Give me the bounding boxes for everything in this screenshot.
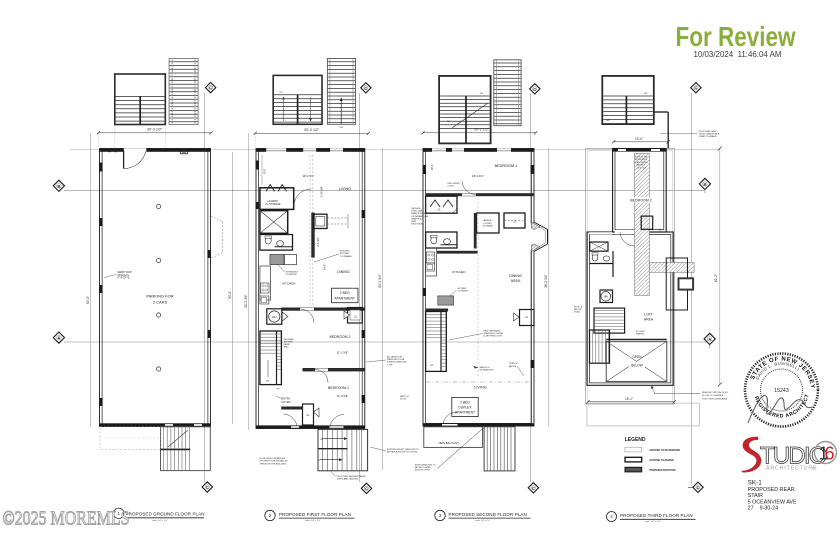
svg-text:THROUGH THE BUILDING: THROUGH THE BUILDING xyxy=(259,463,286,465)
svg-text:ABOVE 7': ABOVE 7' xyxy=(637,164,647,167)
svg-text:BE REMOVED: BE REMOVED xyxy=(480,369,494,371)
svg-text:BEDROOM 1: BEDROOM 1 xyxy=(495,164,518,168)
svg-text:20'-2 1/2": 20'-2 1/2" xyxy=(474,127,490,131)
svg-text:C: C xyxy=(697,486,700,490)
svg-text:ALL BEDROOM: ALL BEDROOM xyxy=(387,356,402,359)
svg-text:©2025 MOREMLS: ©2025 MOREMLS xyxy=(3,508,130,530)
svg-text:EXISTING TO BE REMOVED: EXISTING TO BE REMOVED xyxy=(650,450,681,452)
svg-text:EXIST. GAS: EXIST. GAS xyxy=(411,210,423,213)
svg-text:SMART VENT: SMART VENT xyxy=(117,271,132,274)
svg-text:DINING: DINING xyxy=(337,270,350,274)
svg-text:50'-0": 50'-0" xyxy=(86,296,90,304)
svg-text:2 BED: 2 BED xyxy=(460,400,470,404)
svg-text:(TYP. OF 4): (TYP. OF 4) xyxy=(117,278,129,280)
svg-text:PROPOSED NEW ENTRANCE: PROPOSED NEW ENTRANCE xyxy=(337,475,367,478)
svg-text:(1-HR FIRE) DOOR: (1-HR FIRE) DOOR xyxy=(484,336,503,338)
svg-text:36'-0 3/4": 36'-0 3/4" xyxy=(544,274,548,287)
svg-text:scale: 1/4" = 1'-0": scale: 1/4" = 1'-0" xyxy=(305,520,321,522)
svg-text:REPLACE: REPLACE xyxy=(411,207,421,210)
svg-text:LEGEND: LEGEND xyxy=(625,437,646,443)
svg-text:C: C xyxy=(209,86,212,90)
svg-text:STAIR ENCLOSURE: STAIR ENCLOSURE xyxy=(484,332,504,335)
svg-text:BELOW: BELOW xyxy=(631,364,643,368)
svg-text:BEDROOM 1: BEDROOM 1 xyxy=(328,386,349,390)
svg-text:APARTMENT: APARTMENT xyxy=(455,410,475,414)
svg-text:ROOM WITH: ROOM WITH xyxy=(635,159,647,161)
svg-text:EXISTING TO REMAIN: EXISTING TO REMAIN xyxy=(650,459,675,462)
svg-text:CL: CL xyxy=(438,208,442,212)
svg-text:HW: HW xyxy=(604,296,609,299)
svg-text:COUNTER: COUNTER xyxy=(286,274,297,276)
svg-text:SK-1: SK-1 xyxy=(748,480,763,487)
svg-text:11'-1 5/8": 11'-1 5/8" xyxy=(337,351,349,355)
svg-text:SYSTEM TO BE INSTALLED: SYSTEM TO BE INSTALLED xyxy=(259,460,288,463)
svg-text:14'-0": 14'-0" xyxy=(322,264,326,271)
svg-text:HEATER W/NEW: HEATER W/NEW xyxy=(411,212,427,215)
svg-text:LAUNDRY: LAUNDRY xyxy=(483,219,494,222)
svg-text:C: C xyxy=(206,486,209,490)
svg-text:UP: UP xyxy=(480,93,484,95)
svg-text:DN: DN xyxy=(430,365,434,367)
svg-text:STEPS AND LANDING: STEPS AND LANDING xyxy=(337,478,359,481)
svg-text:BEDROOM 2: BEDROOM 2 xyxy=(329,335,350,339)
svg-text:WALLS TO: WALLS TO xyxy=(480,366,491,369)
svg-text:DOOR: DOOR xyxy=(400,399,407,401)
svg-text:LOFT: LOFT xyxy=(644,313,653,317)
svg-text:10/03/2024 11:46:04 AM: 10/03/2024 11:46:04 AM xyxy=(694,50,782,59)
svg-text:REMOVE PORTION OF EX.: REMOVE PORTION OF EX. xyxy=(702,392,729,394)
svg-text:CLOSET/: CLOSET/ xyxy=(483,223,492,225)
svg-text:FLOOR TO CREATE A: FLOOR TO CREATE A xyxy=(702,394,724,397)
svg-text:LAUNDRY: LAUNDRY xyxy=(267,200,278,203)
svg-text:BE RELOCATED: BE RELOCATED xyxy=(415,466,431,469)
svg-text:AREA: AREA xyxy=(644,317,654,321)
svg-text:ENCLOSURE: ENCLOSURE xyxy=(411,224,424,226)
svg-text:50'-2 3/4": 50'-2 3/4" xyxy=(244,294,248,307)
svg-text:scale: 1/4" = 1'-0": scale: 1/4" = 1'-0" xyxy=(645,521,661,523)
svg-text:ROOF 'B' THE: ROOF 'B' THE xyxy=(635,157,649,159)
svg-text:NEW 1HR RATED: NEW 1HR RATED xyxy=(484,330,502,333)
svg-text:C: C xyxy=(533,87,536,91)
svg-text:DN: DN xyxy=(447,121,451,123)
svg-text:DN: DN xyxy=(644,93,648,95)
svg-text:UP: UP xyxy=(280,92,284,94)
svg-text:BE REPLACED BOTH FLOORS: BE REPLACED BOTH FLOORS xyxy=(387,451,418,454)
svg-text:C: C xyxy=(365,86,368,90)
svg-text:5 OCEANVIEW AVE: 5 OCEANVIEW AVE xyxy=(748,499,797,505)
svg-text:HEATER IN: HEATER IN xyxy=(411,217,422,220)
svg-text:AREA: AREA xyxy=(511,279,521,283)
svg-text:ABOVE: ABOVE xyxy=(509,365,517,368)
svg-text:RAILING: RAILING xyxy=(636,332,644,335)
svg-text:DOOR: DOOR xyxy=(448,186,455,188)
svg-text:LIVING: LIVING xyxy=(339,187,351,191)
svg-text:For Review: For Review xyxy=(676,21,796,52)
svg-text:B: B xyxy=(704,182,707,186)
svg-text:KITCHEN: KITCHEN xyxy=(282,282,295,286)
svg-text:NOTE: NEW SPRINKLER: NOTE: NEW SPRINKLER xyxy=(259,458,285,460)
svg-text:BOTH FLOORS: BOTH FLOORS xyxy=(415,470,431,472)
svg-text:COUNTER: COUNTER xyxy=(458,291,469,293)
svg-text:15243: 15243 xyxy=(774,388,789,394)
svg-text:scale: 1/4" = 1'-0": scale: 1/4" = 1'-0" xyxy=(152,520,168,522)
svg-text:STAIR TO GRADE: STAIR TO GRADE xyxy=(699,135,717,138)
svg-text:DINING: DINING xyxy=(509,274,522,278)
svg-text:PC: PC xyxy=(812,467,817,471)
svg-text:5.7SF: 5.7SF xyxy=(387,364,393,366)
svg-text:DUPLEX: DUPLEX xyxy=(458,405,472,409)
svg-text:8'-0": 8'-0" xyxy=(263,168,267,173)
svg-text:OPEN: OPEN xyxy=(632,355,642,359)
svg-text:20'-2 1/2": 20'-2 1/2" xyxy=(147,128,163,132)
svg-text:30'-0": 30'-0" xyxy=(228,291,232,299)
svg-text:STAIR: STAIR xyxy=(748,493,764,499)
svg-text:scale: 1/4" = 1'-0": scale: 1/4" = 1'-0" xyxy=(475,520,491,522)
svg-text:PROPOSED PARTITION: PROPOSED PARTITION xyxy=(650,469,676,472)
svg-text:APARTMENT: APARTMENT xyxy=(334,297,355,301)
svg-text:WH: WH xyxy=(272,315,276,319)
svg-text:OR EQUAL: OR EQUAL xyxy=(117,274,130,277)
svg-text:2'-6 3/4": 2'-6 3/4" xyxy=(316,237,320,247)
svg-text:VOID OVER LIVING AREA: VOID OVER LIVING AREA xyxy=(702,397,728,400)
svg-text:2 CARS: 2 CARS xyxy=(153,300,168,305)
svg-text:STORAGE: STORAGE xyxy=(483,225,494,228)
svg-text:KITCHEN: KITCHEN xyxy=(452,270,465,274)
svg-text:TO REMAIN: TO REMAIN xyxy=(340,255,352,258)
svg-text:A: A xyxy=(58,336,61,340)
svg-text:11'-0 5/8": 11'-0 5/8" xyxy=(337,394,349,398)
svg-text:27 9-30-24: 27 9-30-24 xyxy=(748,506,779,512)
svg-text:EXTENDED: EXTENDED xyxy=(286,272,298,274)
svg-text:WALL: WALL xyxy=(284,346,290,349)
svg-text:6: 6 xyxy=(825,444,835,464)
svg-text:C: C xyxy=(695,86,698,90)
svg-text:PROPOSED GROUND FLOOR PLAN: PROPOSED GROUND FLOOR PLAN xyxy=(126,512,205,517)
svg-text:PROPOSED THIRD FLOOR PLAN: PROPOSED THIRD FLOOR PLAN xyxy=(620,513,693,518)
svg-text:18'-2 3/4": 18'-2 3/4" xyxy=(472,174,484,178)
svg-text:C: C xyxy=(365,487,368,491)
svg-text:50'-2 3/4": 50'-2 3/4" xyxy=(378,274,382,287)
svg-text:2 BED: 2 BED xyxy=(340,291,350,295)
svg-text:C: C xyxy=(532,486,535,490)
svg-text:UP: UP xyxy=(277,389,281,391)
svg-text:NEW BALCONY: NEW BALCONY xyxy=(439,441,460,445)
svg-text:DN: DN xyxy=(340,127,344,129)
svg-text:(FLAT): (FLAT) xyxy=(574,311,580,314)
svg-text:20'-2 1/2": 20'-2 1/2" xyxy=(304,128,320,132)
svg-text:10'-0": 10'-0" xyxy=(635,137,643,141)
svg-text:FLAT CEILING: FLAT CEILING xyxy=(634,161,648,164)
svg-text:DN: DN xyxy=(266,381,270,383)
svg-text:PARKING FOR: PARKING FOR xyxy=(146,294,173,299)
svg-text:A: A xyxy=(708,337,711,341)
svg-text:11'-6 3/4": 11'-6 3/4" xyxy=(319,186,323,197)
svg-text:42'-2": 42'-2" xyxy=(714,273,718,282)
svg-text:FOYER: FOYER xyxy=(282,400,291,404)
svg-text:B: B xyxy=(58,184,61,188)
svg-text:16'-1": 16'-1" xyxy=(430,164,434,171)
svg-text:CL./STORAGE: CL./STORAGE xyxy=(265,203,281,206)
svg-text:PROPOSED SECOND FLOOR PLAN: PROPOSED SECOND FLOOR PLAN xyxy=(449,512,527,517)
svg-text:LIVING: LIVING xyxy=(474,386,486,390)
svg-text:15'-1": 15'-1" xyxy=(625,397,633,401)
svg-text:BEDROOM 2: BEDROOM 2 xyxy=(630,199,652,203)
svg-text:ARCHITECTURE: ARCHITECTURE xyxy=(766,466,817,472)
svg-text:PROPOSED FIRST FLOOR PLAN: PROPOSED FIRST FLOOR PLAN xyxy=(279,512,351,517)
svg-text:DN: DN xyxy=(606,120,610,122)
svg-text:ON DEMAND GAS: ON DEMAND GAS xyxy=(411,215,429,218)
svg-text:+ 8'-0" CLG: + 8'-0" CLG xyxy=(636,167,647,169)
